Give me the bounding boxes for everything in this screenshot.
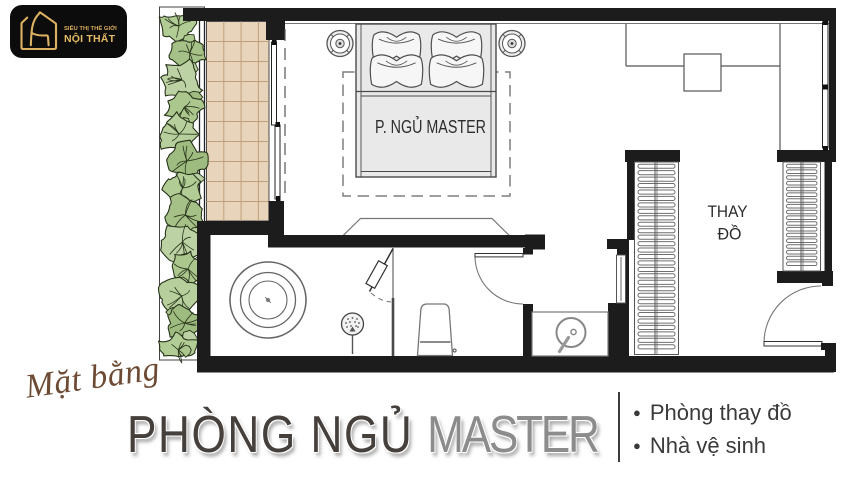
- svg-text:ĐỒ: ĐỒ: [718, 225, 742, 244]
- svg-text:P. NGỦ MASTER: P. NGỦ MASTER: [375, 116, 486, 137]
- svg-text:THAY: THAY: [708, 203, 748, 221]
